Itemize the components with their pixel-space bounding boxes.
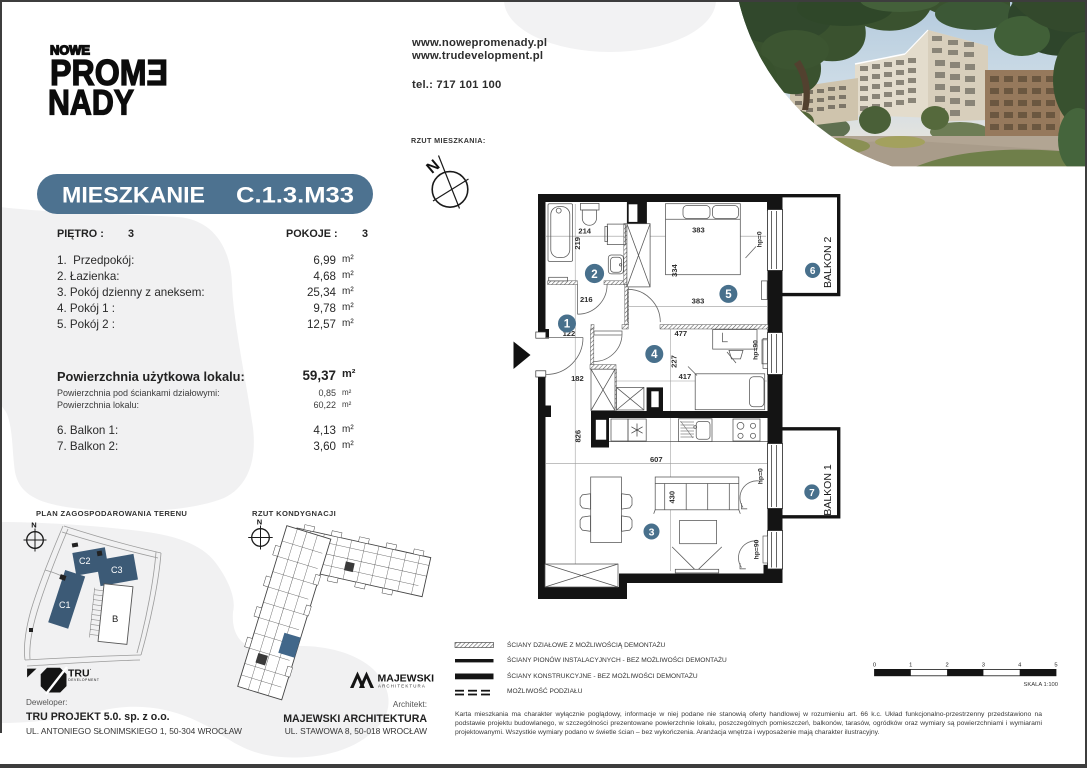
svg-text:214: 214 [578,226,591,235]
svg-text:5: 5 [725,289,732,301]
svg-text:826: 826 [574,430,583,443]
svg-text:383: 383 [692,296,705,305]
svg-text:383: 383 [692,226,705,235]
svg-text:227: 227 [670,355,679,368]
svg-text:2: 2 [945,663,948,669]
svg-text:477: 477 [674,329,687,338]
svg-text:BALKON 2: BALKON 2 [822,236,834,288]
svg-text:hp=0: hp=0 [758,468,765,484]
svg-text:607: 607 [650,455,663,464]
svg-text:219: 219 [573,237,582,250]
svg-text:4: 4 [1018,663,1022,669]
svg-text:hp=90: hp=90 [753,340,760,360]
svg-text:N: N [257,518,262,527]
svg-text:hp=90: hp=90 [753,539,760,559]
svg-text:C1: C1 [59,600,71,610]
svg-text:1: 1 [564,319,571,331]
svg-text:0: 0 [873,663,876,669]
svg-text:hp=0: hp=0 [757,231,764,247]
svg-text:N: N [31,521,36,530]
svg-text:5: 5 [1054,663,1057,669]
svg-text:C2: C2 [79,556,91,566]
svg-text:3: 3 [982,663,985,669]
svg-text:7: 7 [809,488,815,499]
svg-text:ARCHITEKTURA: ARCHITEKTURA [378,684,426,689]
svg-text:1: 1 [909,663,912,669]
svg-text:B: B [112,614,118,625]
svg-text:182: 182 [571,374,584,383]
svg-text:216: 216 [580,295,593,304]
svg-text:BALKON 1: BALKON 1 [822,464,834,516]
svg-text:334: 334 [670,263,679,276]
svg-text:430: 430 [667,491,676,504]
svg-text:6: 6 [810,266,816,277]
svg-text:4: 4 [651,349,658,361]
svg-text:417: 417 [679,372,692,381]
svg-text:C3: C3 [111,565,123,575]
svg-text:DEVELOPMENT: DEVELOPMENT [68,678,99,682]
svg-text:3: 3 [649,526,655,538]
svg-text:2: 2 [591,269,597,281]
